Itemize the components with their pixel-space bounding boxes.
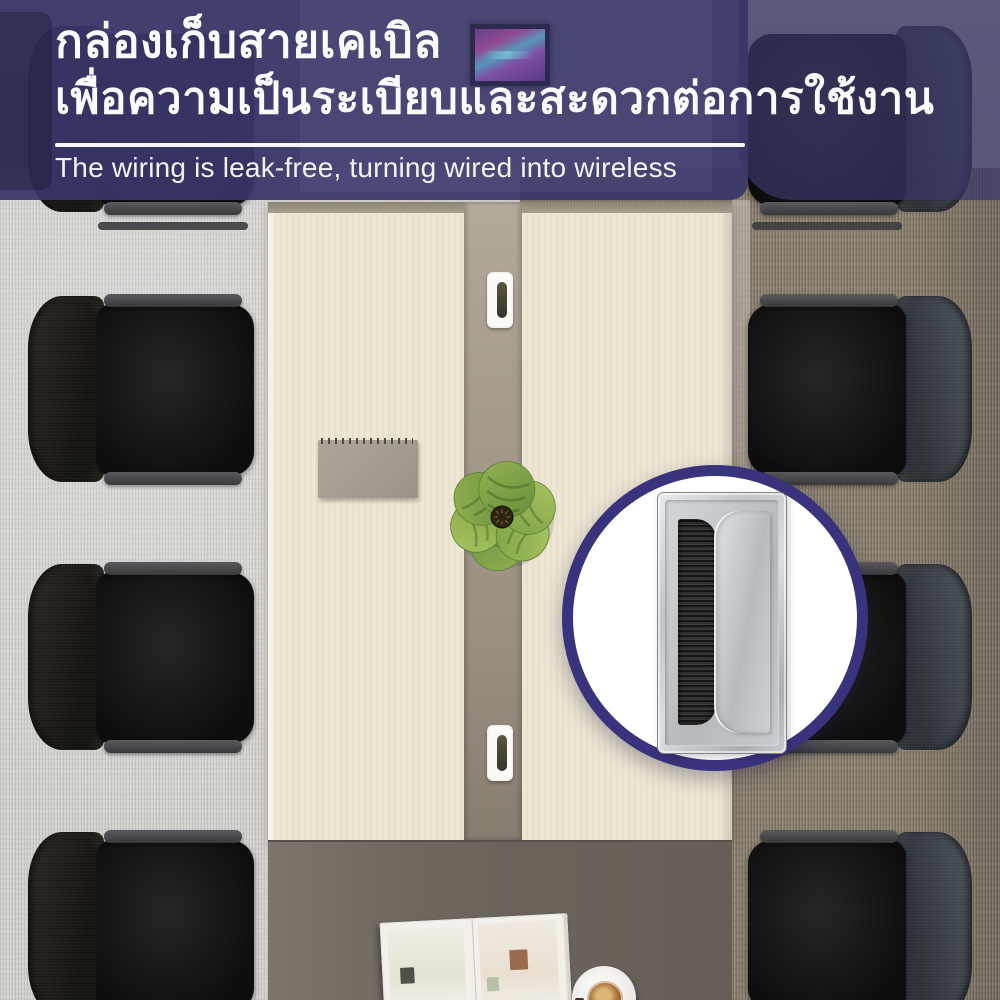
chair-seat [748,840,906,1000]
chair-armrest [104,294,242,307]
cable-grommet-top [487,272,513,328]
cable-grommet-slot [497,735,507,771]
open-magazine [380,913,573,1000]
notepad [318,440,418,498]
product-marketing-image: กล่องเก็บสายเคเบิล เพื่อความเป็นระเบียบแ… [0,0,1000,1000]
potted-plant [446,460,558,572]
chair-backrest [896,296,972,482]
chair-left-3 [2,830,252,1000]
cable-grommet-bottom [487,725,513,781]
subheadline-english: The wiring is leak-free, turning wired i… [55,152,677,184]
chair-seat [96,572,254,744]
chair-frame [752,222,902,230]
chair-seat [748,304,906,476]
chair-armrest [104,562,242,575]
chair-backrest [28,296,104,482]
magazine-photo [487,977,500,992]
magazine-fold [471,918,477,1000]
chair-armrest [760,830,898,843]
chair-right-3 [748,830,998,1000]
product-closeup-inset-circle [562,465,868,771]
chair-seat [96,840,254,1000]
chair-backrest [896,832,972,1000]
magazine-photo [400,967,415,984]
chair-left-2 [2,562,252,754]
plant-illustration [446,460,558,572]
magazine-photo [509,949,528,970]
chair-armrest [760,202,898,215]
headline-thai-line2: เพื่อความเป็นระเบียบและสะดวกต่อการใช้งาน [55,70,934,127]
chair-backrest [896,564,972,750]
table-end-dark-surface [268,840,732,1000]
picture-frame-artwork-highlight [475,51,545,59]
cable-grommet-brush-strip [678,519,716,725]
notepad-spiral-binding [321,438,413,444]
cable-grommet-flip-lid [716,511,770,733]
chair-right-1 [748,294,998,486]
chair-seat [96,304,254,476]
chair-armrest [104,740,242,753]
chair-frame [98,222,248,230]
chair-armrest [104,472,242,485]
chair-backrest [28,564,104,750]
magazine-photo [387,927,467,1000]
latte-cup [587,981,623,1000]
chair-backrest [28,832,104,1000]
chair-armrest [104,830,242,843]
headline-thai-line1: กล่องเก็บสายเคเบิล [55,14,442,69]
banner-divider-line [55,143,745,147]
chair-armrest [760,294,898,307]
chair-armrest [104,202,242,215]
background-chair-silhouette [0,12,52,190]
chair-left-1 [2,294,252,486]
coffee-saucer [572,966,636,1000]
cable-grommet-box [657,492,787,754]
cable-grommet-slot [497,282,507,318]
